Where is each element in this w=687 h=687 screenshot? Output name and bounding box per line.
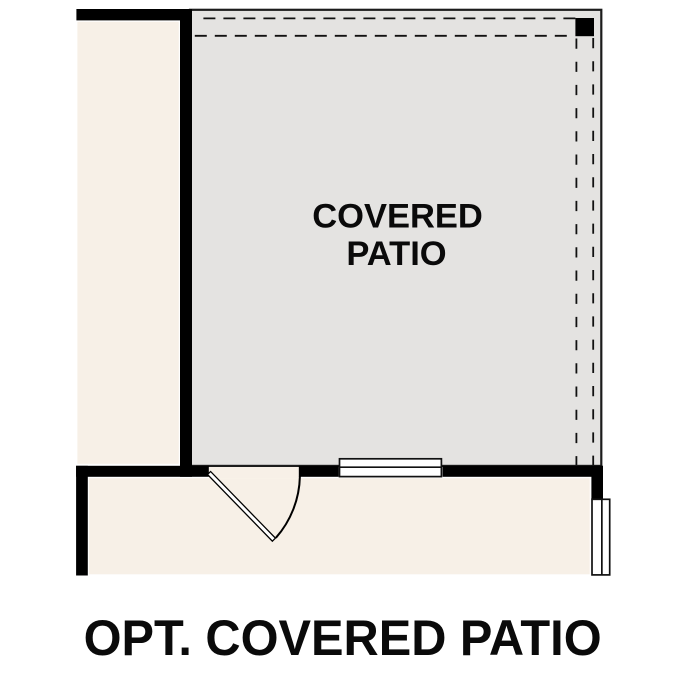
svg-text:COVERED: COVERED	[312, 198, 483, 236]
svg-text:PATIO: PATIO	[346, 235, 446, 273]
svg-text:OPT. COVERED PATIO: OPT. COVERED PATIO	[84, 610, 602, 666]
